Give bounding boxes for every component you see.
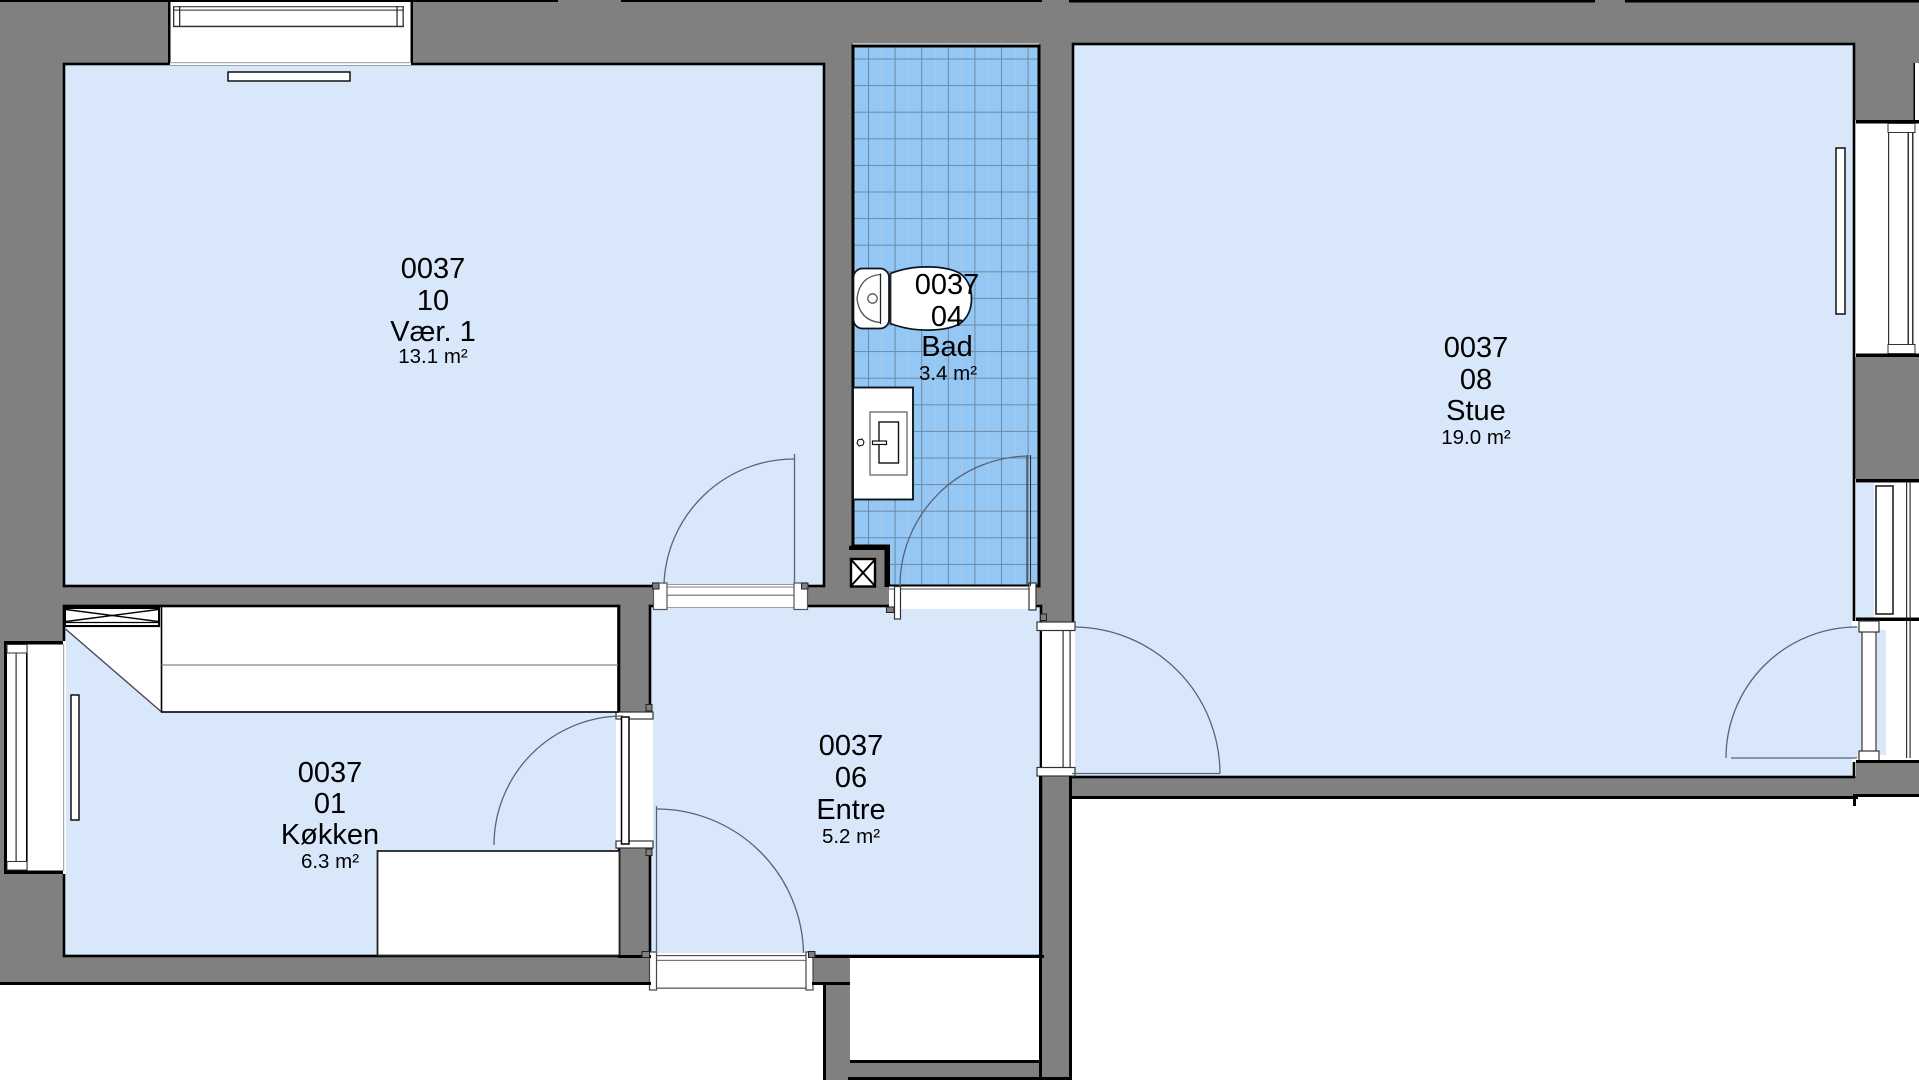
svg-text:08: 08 [1460, 364, 1492, 396]
svg-text:01: 01 [314, 788, 346, 820]
svg-text:5.2 m²: 5.2 m² [822, 825, 880, 848]
svg-text:0037: 0037 [819, 730, 884, 762]
svg-text:Stue: Stue [1446, 395, 1506, 427]
svg-text:Vær. 1: Vær. 1 [390, 316, 475, 348]
svg-text:13.1 m²: 13.1 m² [398, 345, 468, 368]
svg-text:Bad: Bad [921, 331, 973, 363]
svg-text:06: 06 [835, 762, 867, 794]
svg-text:19.0 m²: 19.0 m² [1441, 426, 1511, 449]
svg-text:0037: 0037 [915, 269, 980, 301]
svg-text:3.4 m²: 3.4 m² [919, 362, 977, 385]
svg-text:Entre: Entre [816, 794, 885, 826]
svg-text:Køkken: Køkken [281, 819, 379, 851]
svg-text:0037: 0037 [298, 757, 363, 789]
svg-text:0037: 0037 [1444, 332, 1509, 364]
svg-text:10: 10 [417, 285, 449, 317]
svg-text:04: 04 [931, 301, 963, 333]
svg-text:0037: 0037 [401, 253, 466, 285]
svg-text:6.3 m²: 6.3 m² [301, 850, 359, 873]
